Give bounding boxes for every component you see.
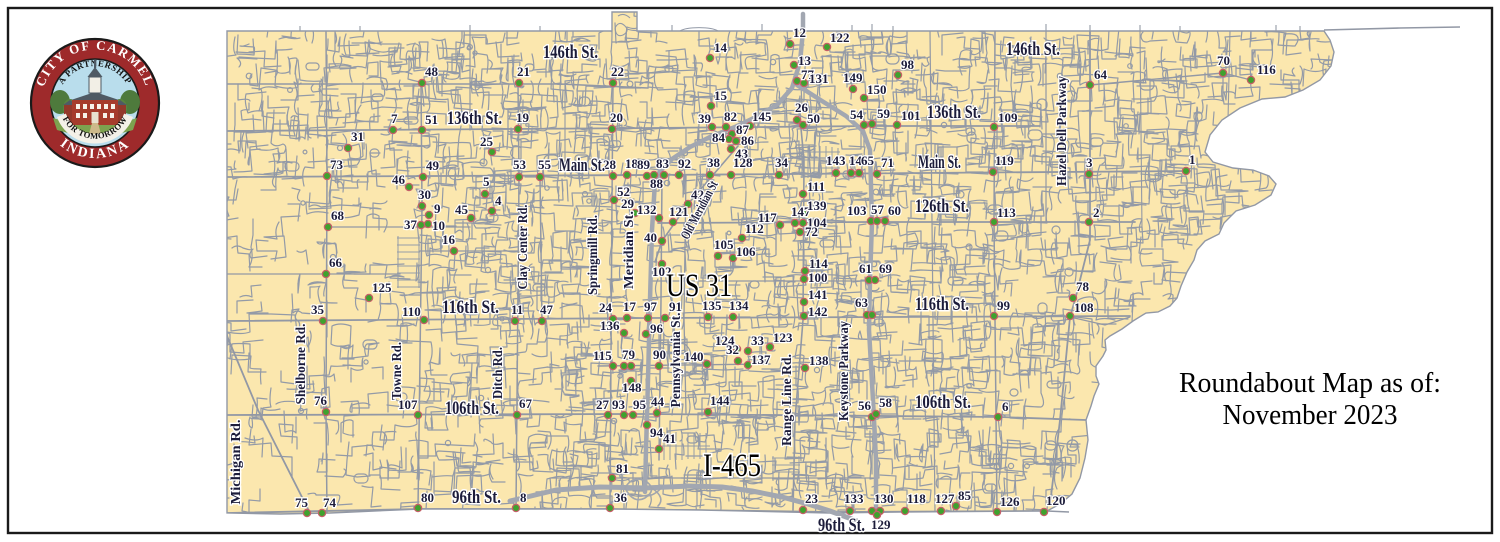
svg-text:125: 125 bbox=[372, 280, 392, 295]
svg-text:53: 53 bbox=[513, 157, 527, 172]
svg-text:83: 83 bbox=[656, 156, 670, 171]
svg-text:Clay Center Rd.: Clay Center Rd. bbox=[515, 205, 530, 290]
svg-text:103: 103 bbox=[847, 203, 867, 218]
svg-text:85: 85 bbox=[958, 488, 972, 503]
svg-text:49: 49 bbox=[426, 158, 440, 173]
svg-text:76: 76 bbox=[314, 393, 328, 408]
svg-text:89: 89 bbox=[637, 157, 651, 172]
svg-text:73: 73 bbox=[330, 157, 344, 172]
svg-text:127: 127 bbox=[935, 491, 955, 506]
svg-text:4: 4 bbox=[495, 193, 502, 208]
svg-text:146th St.: 146th St. bbox=[543, 42, 598, 63]
svg-text:41: 41 bbox=[663, 431, 676, 446]
svg-text:106: 106 bbox=[736, 244, 756, 259]
svg-text:120: 120 bbox=[1046, 493, 1066, 508]
svg-text:109: 109 bbox=[998, 110, 1018, 125]
svg-text:96th St.: 96th St. bbox=[452, 487, 501, 508]
svg-text:64: 64 bbox=[1094, 67, 1108, 82]
svg-text:78: 78 bbox=[1076, 279, 1090, 294]
svg-text:123: 123 bbox=[773, 330, 793, 345]
svg-text:Hazel Dell Parkway: Hazel Dell Parkway bbox=[1054, 76, 1069, 186]
svg-text:68: 68 bbox=[331, 208, 345, 223]
svg-text:118: 118 bbox=[907, 491, 926, 506]
svg-text:9: 9 bbox=[434, 201, 441, 216]
svg-text:94: 94 bbox=[650, 425, 664, 440]
svg-text:19: 19 bbox=[516, 110, 530, 125]
svg-text:Main St.: Main St. bbox=[918, 152, 961, 173]
svg-text:3: 3 bbox=[1086, 155, 1093, 170]
svg-text:95: 95 bbox=[633, 397, 647, 412]
svg-text:119: 119 bbox=[995, 153, 1014, 168]
svg-text:99: 99 bbox=[997, 298, 1011, 313]
svg-text:148: 148 bbox=[622, 380, 642, 395]
svg-text:Ditch Rd.: Ditch Rd. bbox=[490, 347, 505, 399]
svg-text:24: 24 bbox=[599, 300, 613, 315]
svg-text:29: 29 bbox=[621, 196, 635, 211]
svg-text:75: 75 bbox=[295, 495, 309, 510]
svg-text:32: 32 bbox=[726, 342, 739, 357]
svg-text:92: 92 bbox=[678, 156, 691, 171]
svg-text:37: 37 bbox=[404, 217, 418, 232]
svg-text:97: 97 bbox=[644, 299, 658, 314]
svg-text:31: 31 bbox=[351, 129, 364, 144]
svg-text:131: 131 bbox=[809, 71, 829, 86]
svg-text:113: 113 bbox=[997, 205, 1016, 220]
svg-text:63: 63 bbox=[855, 295, 869, 310]
svg-text:100: 100 bbox=[808, 270, 828, 285]
svg-text:70: 70 bbox=[1217, 53, 1230, 68]
svg-text:48: 48 bbox=[425, 64, 439, 79]
svg-text:51: 51 bbox=[425, 112, 438, 127]
svg-text:88: 88 bbox=[650, 176, 664, 191]
svg-text:126: 126 bbox=[1000, 494, 1020, 509]
svg-text:114: 114 bbox=[809, 256, 828, 271]
svg-text:74: 74 bbox=[323, 495, 337, 510]
svg-text:136: 136 bbox=[600, 318, 620, 333]
svg-text:150: 150 bbox=[867, 82, 887, 97]
svg-text:126th St.: 126th St. bbox=[915, 196, 969, 217]
svg-text:11: 11 bbox=[511, 302, 523, 317]
svg-text:67: 67 bbox=[519, 396, 533, 411]
svg-text:59: 59 bbox=[877, 106, 891, 121]
svg-text:93: 93 bbox=[612, 397, 626, 412]
svg-text:101: 101 bbox=[901, 108, 921, 123]
svg-text:121: 121 bbox=[669, 204, 689, 219]
svg-text:132: 132 bbox=[637, 202, 657, 217]
svg-text:58: 58 bbox=[879, 395, 893, 410]
svg-text:141: 141 bbox=[808, 287, 828, 302]
svg-text:34: 34 bbox=[775, 155, 789, 170]
svg-text:138: 138 bbox=[809, 353, 829, 368]
svg-text:33: 33 bbox=[751, 333, 765, 348]
svg-text:110: 110 bbox=[402, 304, 421, 319]
svg-text:15: 15 bbox=[714, 88, 728, 103]
svg-text:105: 105 bbox=[714, 237, 734, 252]
svg-text:36: 36 bbox=[614, 490, 628, 505]
svg-text:10: 10 bbox=[432, 218, 445, 233]
svg-text:47: 47 bbox=[540, 302, 554, 317]
svg-text:38: 38 bbox=[707, 155, 721, 170]
svg-text:2: 2 bbox=[1093, 205, 1100, 220]
svg-text:149: 149 bbox=[843, 70, 863, 85]
svg-text:56: 56 bbox=[858, 398, 872, 413]
svg-text:128: 128 bbox=[733, 155, 753, 170]
svg-text:14: 14 bbox=[714, 40, 728, 55]
svg-text:6: 6 bbox=[1002, 399, 1009, 414]
svg-text:12: 12 bbox=[793, 25, 806, 40]
svg-text:57: 57 bbox=[871, 202, 885, 217]
svg-text:40: 40 bbox=[644, 230, 657, 245]
svg-text:140: 140 bbox=[684, 349, 704, 364]
svg-text:20: 20 bbox=[610, 110, 623, 125]
svg-text:144: 144 bbox=[710, 393, 730, 408]
svg-text:106th St.: 106th St. bbox=[445, 398, 499, 419]
svg-text:Shelborne Rd.: Shelborne Rd. bbox=[293, 324, 308, 405]
svg-text:80: 80 bbox=[421, 490, 434, 505]
svg-text:130: 130 bbox=[874, 491, 894, 506]
svg-text:I-465: I-465 bbox=[703, 448, 761, 484]
svg-text:50: 50 bbox=[807, 111, 820, 126]
svg-text:71: 71 bbox=[881, 155, 894, 170]
svg-text:5: 5 bbox=[483, 174, 490, 189]
svg-text:35: 35 bbox=[311, 302, 325, 317]
svg-text:117: 117 bbox=[758, 210, 777, 225]
svg-text:61: 61 bbox=[859, 261, 872, 276]
svg-text:116th St.: 116th St. bbox=[442, 297, 499, 318]
svg-text:55: 55 bbox=[538, 157, 552, 172]
svg-text:98: 98 bbox=[901, 57, 915, 72]
svg-text:108: 108 bbox=[1074, 300, 1094, 315]
svg-text:46: 46 bbox=[392, 172, 406, 187]
svg-text:136th St.: 136th St. bbox=[447, 108, 502, 129]
svg-text:81: 81 bbox=[616, 461, 629, 476]
svg-text:136th St.: 136th St. bbox=[927, 102, 981, 123]
svg-text:US 31: US 31 bbox=[666, 268, 732, 304]
svg-text:145: 145 bbox=[752, 109, 772, 124]
svg-text:Michigan Rd.: Michigan Rd. bbox=[228, 420, 243, 505]
svg-text:129: 129 bbox=[871, 517, 891, 532]
svg-text:106th St.: 106th St. bbox=[915, 392, 971, 413]
svg-text:143: 143 bbox=[826, 153, 846, 168]
svg-text:Main St.: Main St. bbox=[559, 155, 605, 176]
svg-text:96th St.: 96th St. bbox=[818, 515, 865, 536]
svg-text:8: 8 bbox=[520, 490, 527, 505]
svg-text:139: 139 bbox=[807, 198, 827, 213]
svg-text:122: 122 bbox=[830, 30, 850, 45]
svg-text:25: 25 bbox=[480, 134, 494, 149]
svg-text:28: 28 bbox=[603, 157, 617, 172]
svg-text:22: 22 bbox=[611, 64, 624, 79]
svg-text:84: 84 bbox=[712, 130, 726, 145]
svg-text:45: 45 bbox=[455, 202, 469, 217]
svg-text:Range Line Rd.: Range Line Rd. bbox=[779, 354, 794, 446]
svg-text:116th St.: 116th St. bbox=[915, 294, 969, 315]
svg-text:69: 69 bbox=[879, 261, 893, 276]
svg-text:54: 54 bbox=[850, 107, 864, 122]
svg-text:142: 142 bbox=[808, 304, 828, 319]
svg-text:30: 30 bbox=[418, 187, 431, 202]
svg-text:17: 17 bbox=[623, 299, 637, 314]
svg-text:27: 27 bbox=[596, 397, 610, 412]
svg-text:96: 96 bbox=[650, 321, 664, 336]
svg-text:23: 23 bbox=[805, 491, 819, 506]
svg-text:39: 39 bbox=[698, 111, 712, 126]
svg-text:44: 44 bbox=[651, 394, 665, 409]
svg-text:66: 66 bbox=[329, 255, 343, 270]
svg-text:72: 72 bbox=[805, 224, 818, 239]
svg-text:65: 65 bbox=[861, 153, 875, 168]
svg-text:7: 7 bbox=[391, 111, 398, 126]
svg-text:134: 134 bbox=[729, 298, 749, 313]
svg-text:Pennsylvania St.: Pennsylvania St. bbox=[668, 313, 683, 408]
svg-text:November 2023: November 2023 bbox=[1223, 399, 1398, 431]
svg-text:Meridian St.: Meridian St. bbox=[621, 211, 636, 289]
svg-text:116: 116 bbox=[1257, 62, 1276, 77]
svg-text:16: 16 bbox=[442, 232, 456, 247]
svg-text:13: 13 bbox=[798, 53, 812, 68]
svg-text:79: 79 bbox=[622, 347, 636, 362]
svg-text:115: 115 bbox=[593, 348, 612, 363]
svg-text:Roundabout Map as of:: Roundabout Map as of: bbox=[1179, 367, 1441, 399]
svg-text:Springmill Rd.: Springmill Rd. bbox=[585, 215, 600, 295]
svg-text:1: 1 bbox=[1189, 152, 1196, 167]
svg-text:137: 137 bbox=[751, 352, 771, 367]
svg-text:60: 60 bbox=[888, 203, 901, 218]
svg-text:21: 21 bbox=[517, 64, 530, 79]
svg-text:133: 133 bbox=[844, 491, 864, 506]
svg-text:111: 111 bbox=[807, 179, 825, 194]
svg-text:Keystone Parkway: Keystone Parkway bbox=[836, 321, 851, 421]
svg-text:146th St.: 146th St. bbox=[1006, 39, 1060, 60]
svg-text:90: 90 bbox=[653, 347, 666, 362]
svg-text:Towne Rd.: Towne Rd. bbox=[389, 342, 404, 400]
